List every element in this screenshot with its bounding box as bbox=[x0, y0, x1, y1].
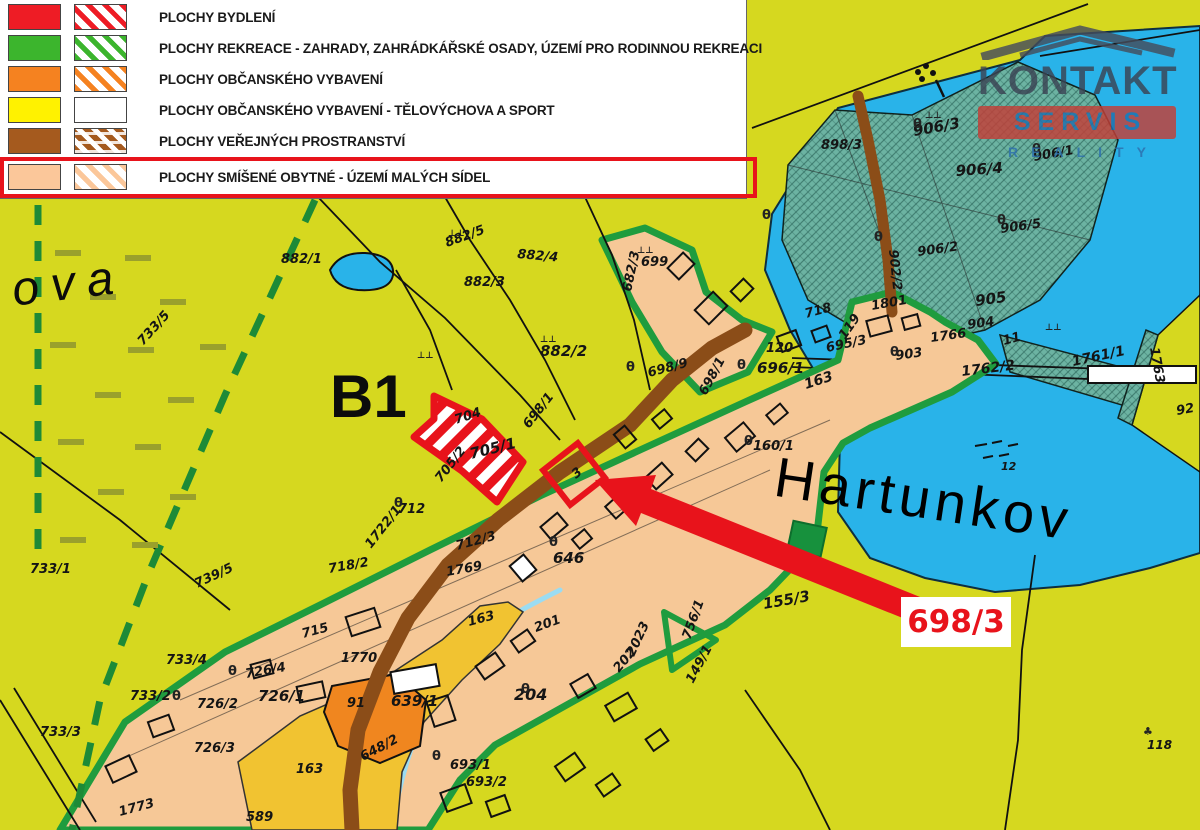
parcel-number: 733/1 bbox=[30, 562, 71, 577]
legend-item: PLOCHY OBČANSKÉHO VYBAVENÍ bbox=[0, 64, 746, 94]
legend-item: PLOCHY BYDLENÍ bbox=[0, 2, 746, 32]
grass-symbol: ⊥⊥ bbox=[417, 351, 433, 361]
theta-symbol: θ bbox=[737, 358, 746, 373]
legend-item-label: PLOCHY VEŘEJNÝCH PROSTRANSTVÍ bbox=[159, 134, 405, 149]
grass-symbol: ⊥⊥ bbox=[637, 246, 653, 256]
theta-symbol: θ bbox=[913, 117, 922, 132]
legend-swatch-solid bbox=[8, 164, 61, 190]
parcel-number: 118 bbox=[1147, 738, 1172, 752]
legend-item: PLOCHY REKREACE - ZAHRADY, ZAHRÁDKÁŘSKÉ … bbox=[0, 33, 746, 63]
parcel-number: 906/4 bbox=[955, 159, 1003, 180]
grass-symbol: ⊥⊥ bbox=[1045, 323, 1061, 333]
theta-symbol: θ bbox=[432, 749, 441, 764]
legend-swatch-hatched bbox=[74, 35, 127, 61]
parcel-number: 1770 bbox=[341, 651, 377, 666]
parcel-number: 91 bbox=[347, 696, 365, 711]
legend-item: PLOCHY OBČANSKÉHO VYBAVENÍ - TĚLOVÝCHOVA… bbox=[0, 95, 746, 125]
grass-symbol: ⊥⊥ bbox=[925, 111, 941, 121]
legend-swatch-solid bbox=[8, 4, 61, 30]
legend-item: PLOCHY VEŘEJNÝCH PROSTRANSTVÍ bbox=[0, 126, 746, 156]
legend-swatch-hatched bbox=[74, 97, 127, 123]
watermark-logo: KONTAKT SERVIS REALITY bbox=[978, 24, 1176, 160]
parcel-number: 696/1 bbox=[757, 359, 804, 377]
legend-item-label: PLOCHY SMÍŠENÉ OBYTNÉ - ÚZEMÍ MALÝCH SÍD… bbox=[159, 170, 490, 185]
grass-symbol: ⊥⊥ bbox=[448, 229, 464, 239]
theta-symbol: θ bbox=[521, 682, 530, 697]
parcel-number: 639/1 bbox=[391, 692, 438, 710]
parcel-number: 120 bbox=[766, 341, 793, 356]
watermark-title: KONTAKT bbox=[978, 61, 1176, 101]
zoning-map-screenshot: 882/5882/4882/3882/2882/1733/5733/1733/4… bbox=[0, 0, 1200, 830]
parcel-number: 646 bbox=[553, 549, 584, 567]
parcel-number: 882/3 bbox=[464, 275, 505, 290]
parcel-number: 733/4 bbox=[166, 653, 207, 668]
legend-swatch-hatched bbox=[74, 128, 127, 154]
theta-symbol: θ bbox=[549, 535, 558, 550]
tree-symbol: ♣ bbox=[1143, 725, 1153, 738]
legend-swatch-solid bbox=[8, 97, 61, 123]
theta-symbol: θ bbox=[762, 208, 771, 223]
parcel-number: 589 bbox=[246, 810, 273, 825]
watermark-tagline: REALITY bbox=[978, 144, 1189, 160]
parcel-number: 163 bbox=[296, 762, 323, 777]
parcel-number: 733/3 bbox=[40, 725, 81, 740]
grass-symbol: ⊥⊥ bbox=[540, 335, 556, 345]
theta-symbol: θ bbox=[172, 689, 181, 704]
theta-symbol: θ bbox=[744, 434, 753, 449]
parcel-number: 898/3 bbox=[821, 138, 862, 153]
theta-symbol: θ bbox=[874, 230, 883, 245]
theta-symbol: θ bbox=[890, 345, 899, 360]
parcel-number: 693/1 bbox=[450, 758, 491, 773]
legend-item-label: PLOCHY BYDLENÍ bbox=[159, 10, 275, 25]
legend-item-label: PLOCHY OBČANSKÉHO VYBAVENÍ - TĚLOVÝCHOVA… bbox=[159, 103, 554, 118]
theta-symbol: θ bbox=[997, 213, 1006, 228]
parcel-number: 726/1 bbox=[258, 687, 305, 705]
legend-swatch-hatched bbox=[74, 4, 127, 30]
legend-swatch-hatched bbox=[74, 164, 127, 190]
theta-symbol: θ bbox=[626, 360, 635, 375]
parcel-number: 882/1 bbox=[281, 252, 322, 267]
zone-label-b1: B1 bbox=[330, 362, 407, 431]
theta-symbol: θ bbox=[228, 664, 237, 679]
parcel-number: 12 bbox=[1001, 460, 1017, 473]
legend-item-label: PLOCHY OBČANSKÉHO VYBAVENÍ bbox=[159, 72, 383, 87]
legend-swatch-solid bbox=[8, 128, 61, 154]
legend-item: PLOCHY SMÍŠENÉ OBYTNÉ - ÚZEMÍ MALÝCH SÍD… bbox=[0, 162, 746, 192]
parcel-callout-label: 698/3 bbox=[901, 597, 1011, 647]
parcel-number: 726/3 bbox=[194, 741, 235, 756]
legend-swatch-hatched bbox=[74, 66, 127, 92]
parcel-number: 92 bbox=[1175, 401, 1195, 419]
watermark-subtitle: SERVIS bbox=[1014, 108, 1147, 137]
pond bbox=[330, 253, 393, 290]
legend-swatch-solid bbox=[8, 66, 61, 92]
legend-panel: PLOCHY BYDLENÍPLOCHY REKREACE - ZAHRADY,… bbox=[0, 0, 747, 199]
parcel-number: 693/2 bbox=[466, 775, 507, 790]
legend-swatch-solid bbox=[8, 35, 61, 61]
parcel-number: 204 bbox=[514, 685, 547, 704]
parcel-number: 726/2 bbox=[197, 697, 238, 712]
legend-item-label: PLOCHY REKREACE - ZAHRADY, ZAHRÁDKÁŘSKÉ … bbox=[159, 41, 762, 56]
parcel-number: 699 bbox=[641, 255, 668, 270]
roof-icon bbox=[978, 24, 1176, 60]
watermark-banner: SERVIS bbox=[978, 106, 1176, 139]
parcel-number: 733/2 bbox=[130, 689, 171, 704]
theta-symbol: θ bbox=[394, 496, 403, 511]
